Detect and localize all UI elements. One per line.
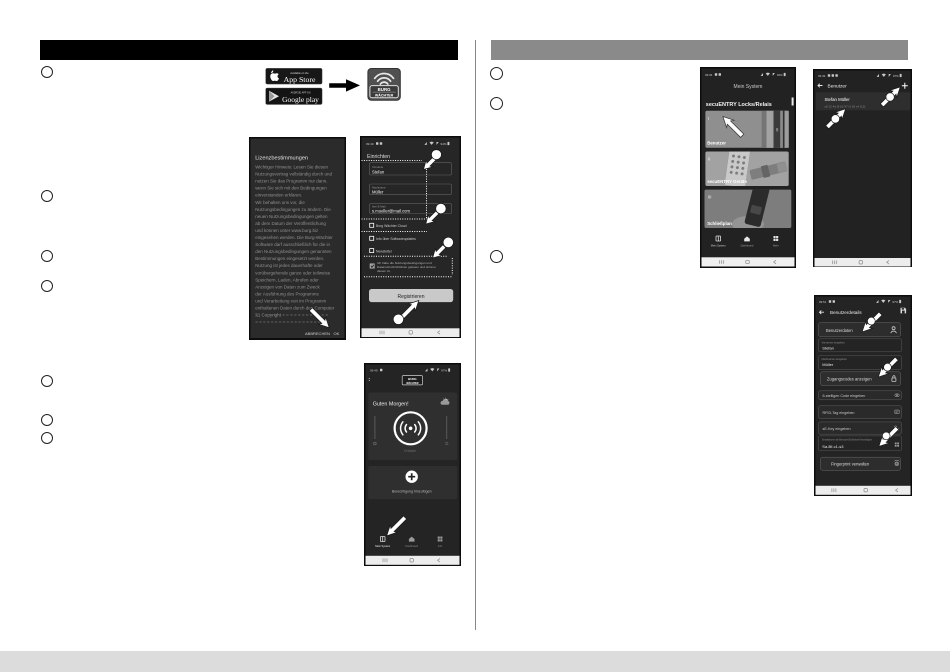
svg-text:secuENTRY Locks/Relais: secuENTRY Locks/Relais (706, 102, 772, 108)
svg-text:Wir behalten uns vor, die: Wir behalten uns vor, die (255, 200, 305, 205)
svg-text:Speichern, Laden, Abrufen oder: Speichern, Laden, Abrufen oder (255, 277, 319, 282)
svg-text:Registrieren: Registrieren (398, 294, 425, 300)
svg-text:09:49: 09:49 (818, 74, 826, 78)
svg-text:Fingerprint verwalten: Fingerprint verwalten (831, 462, 870, 467)
svg-text:Nachnamen eingeben: Nachnamen eingeben (822, 357, 848, 361)
svg-text:Vornamen eingeben: Vornamen eingeben (822, 340, 846, 344)
svg-text:Einrichten: Einrichten (367, 154, 390, 160)
svg-text:nutzen Sie das Programm nur da: nutzen Sie das Programm nur dann, (255, 179, 327, 184)
svg-text:Burg Wächter Cloud: Burg Wächter Cloud (376, 224, 407, 228)
svg-text:Nutzungsvertrag vollständig du: Nutzungsvertrag vollständig durch und (255, 172, 332, 177)
svg-text:OK: OK (334, 331, 340, 336)
svg-text:und Verarbeitung von im Progra: und Verarbeitung von im Programm (255, 298, 326, 303)
svg-text:Guten Morgen!: Guten Morgen! (373, 401, 409, 407)
svg-text:einverstanden erklären.: einverstanden erklären. (255, 193, 302, 198)
svg-text:Info: Info (438, 544, 443, 548)
svg-text:Anzeigen von Daten zum Zweck: Anzeigen von Daten zum Zweck (255, 284, 320, 289)
svg-text:s.mueller@mail.com: s.mueller@mail.com (372, 208, 411, 213)
svg-text:der Ausführung des Programms: der Ausführung des Programms (255, 291, 319, 296)
svg-text:II: II (708, 157, 711, 162)
svg-text:Benutzer: Benutzer (707, 141, 726, 146)
svg-text:ab dem Datum der Veröffentlich: ab dem Datum der Veröffentlichung (255, 221, 326, 226)
svg-text:Mein System: Mein System (711, 244, 726, 248)
svg-text:Lizenzbestimmungen: Lizenzbestimmungen (255, 156, 308, 162)
svg-text:Dashboard: Dashboard (741, 244, 754, 248)
svg-text:BURG: BURG (378, 87, 392, 92)
svg-text:09:49: 09:49 (366, 142, 374, 146)
svg-text:Stefan: Stefan (822, 345, 834, 350)
svg-text:eingesehen werden. Die Burg-Wä: eingesehen werden. Die Burg-Wächter (255, 235, 333, 240)
svg-text:97%: 97% (893, 74, 899, 78)
svg-text:Software darf ausschließlich f: Software darf ausschließlich für die in (255, 242, 330, 247)
svg-text:Smartphone als Benutzer/Schlüs: Smartphone als Benutzer/Schlüssel hinzuf… (822, 438, 873, 441)
svg-text:97%: 97% (892, 300, 898, 304)
svg-text:c8 12 4a 5f b2 97 f1 b3 c4 (12: c8 12 4a 5f b2 97 f1 b3 c4 (12) (825, 105, 866, 109)
svg-text:09:49: 09:49 (370, 369, 378, 373)
svg-text:enthaltenen Daten durch den Co: enthaltenen Daten durch den Computer (255, 306, 335, 311)
svg-text:ABBRECHEN: ABBRECHEN (305, 331, 330, 336)
svg-text:sE-Key eingeben: sE-Key eingeben (823, 427, 851, 431)
svg-text:Stefan Müller: Stefan Müller (825, 97, 851, 102)
svg-text:Info über Softwareupdates: Info über Softwareupdates (376, 237, 416, 241)
svg-text:WÄCHTER: WÄCHTER (406, 382, 418, 385)
svg-text:Bestimmungen eingesetzt werden: Bestimmungen eingesetzt werden. (255, 256, 324, 261)
svg-text:94%: 94% (777, 73, 783, 77)
svg-text:Benutzer: Benutzer (828, 83, 848, 89)
svg-text:Benutzerdaten: Benutzerdaten (826, 328, 853, 333)
svg-text:App Store: App Store (284, 75, 316, 84)
svg-text:Schließplan: Schließplan (707, 221, 732, 226)
svg-text:secuENTRY Geräte: secuENTRY Geräte (707, 179, 747, 184)
svg-text:Dashboard: Dashboard (405, 544, 418, 548)
svg-text:Mein System: Mein System (375, 544, 390, 548)
svg-text:WÄCHTER: WÄCHTER (375, 93, 394, 97)
svg-text:Drücken: Drücken (404, 449, 416, 453)
svg-text:Müller: Müller (372, 189, 384, 194)
svg-text:vorübergehende ganze oder teil: vorübergehende ganze oder teilweise (255, 270, 331, 275)
svg-text:Müller: Müller (822, 362, 834, 367)
svg-text:94%: 94% (440, 142, 446, 146)
svg-text:Benutzerdetails: Benutzerdetails (830, 310, 862, 315)
svg-text:I: I (708, 116, 709, 121)
svg-text:RFID-Tag eingeben: RFID-Tag eingeben (823, 411, 855, 415)
svg-text:Newsletter: Newsletter (376, 250, 393, 254)
svg-text:Vorname: Vorname (372, 165, 384, 169)
svg-text:BURG: BURG (408, 377, 417, 381)
svg-text:Stefan: Stefan (372, 170, 385, 175)
svg-text:6-stelligen Code eingeben: 6-stelligen Code eingeben (823, 394, 866, 398)
svg-text:Sa-Bf-c1-s3: Sa-Bf-c1-s3 (822, 444, 844, 449)
svg-text:Nutzungsbedingungen zu ändern.: Nutzungsbedingungen zu ändern. Die (255, 207, 331, 212)
svg-text:neuen Nutzungsbedingungen gelt: neuen Nutzungsbedingungen gelten (255, 214, 328, 219)
svg-text:Mehr: Mehr (773, 244, 779, 248)
svg-text:Mein System: Mein System (734, 84, 763, 90)
svg-text:wenn Sie sich mit den Bedingun: wenn Sie sich mit den Bedingungen (255, 186, 327, 191)
svg-text:Berechtigung hinzufügen: Berechtigung hinzufügen (392, 489, 432, 493)
svg-text:diesen zu: diesen zu (377, 269, 391, 273)
svg-text:09:36: 09:36 (705, 73, 713, 77)
svg-text:09:51: 09:51 (819, 300, 827, 304)
svg-text:97%: 97% (441, 369, 447, 373)
svg-text:Google play: Google play (282, 95, 319, 104)
svg-text:Zugangscodes anzeigen: Zugangscodes anzeigen (827, 377, 872, 382)
svg-text:Wichtiger Hinweis: Lesen Sie d: Wichtiger Hinweis: Lesen Sie diesen (255, 165, 328, 170)
svg-text:= = = = = = = = = = = = = = =: = = = = = = = = = = = = = = = = = = = (255, 320, 329, 325)
svg-text:und können unter www.burg.biz: und können unter www.burg.biz (255, 228, 319, 233)
svg-text:Nutzung ist jedes dauerhafte o: Nutzung ist jedes dauerhafte oder (255, 263, 323, 268)
svg-text:III: III (708, 195, 712, 200)
svg-text:den Nutzungsbedingungen genann: den Nutzungsbedingungen genannten (255, 249, 332, 254)
